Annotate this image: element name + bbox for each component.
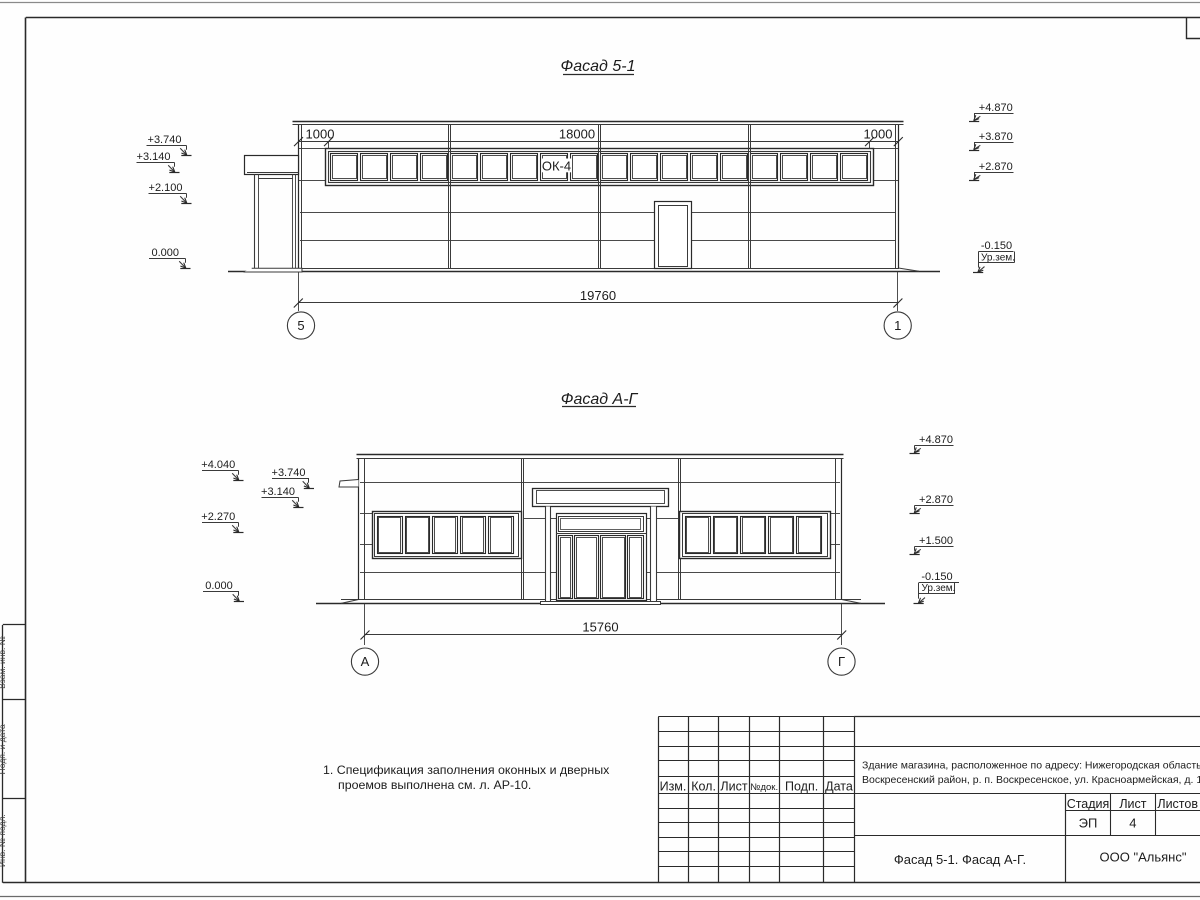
svg-text:Взам. инв. №: Взам. инв. № xyxy=(0,636,7,689)
svg-text:4: 4 xyxy=(1129,816,1136,831)
svg-text:Лист: Лист xyxy=(1119,797,1146,811)
svg-text:Листов: Листов xyxy=(1157,797,1198,811)
svg-text:Стадия: Стадия xyxy=(1067,797,1110,811)
svg-text:Воскресенский район, р. п. Вос: Воскресенский район, р. п. Воскресенское… xyxy=(862,774,1200,786)
svg-text:+3.740: +3.740 xyxy=(272,467,306,479)
svg-text:18000: 18000 xyxy=(559,127,595,142)
svg-text:ООО "Альянс": ООО "Альянс" xyxy=(1100,850,1187,865)
svg-text:+3.870: +3.870 xyxy=(979,131,1013,143)
svg-text:1000: 1000 xyxy=(864,127,893,142)
svg-text:+1.500: +1.500 xyxy=(919,535,953,547)
svg-text:1. Спецификация заполнения око: 1. Спецификация заполнения оконных и две… xyxy=(323,763,610,777)
svg-text:проемов выполнена см. л. АР-10: проемов выполнена см. л. АР-10. xyxy=(338,778,531,792)
svg-text:№док.: №док. xyxy=(750,782,778,793)
svg-text:Фасад А-Г: Фасад А-Г xyxy=(561,391,639,408)
svg-text:Г: Г xyxy=(838,654,845,669)
svg-text:+3.740: +3.740 xyxy=(148,134,182,146)
svg-text:+4.870: +4.870 xyxy=(919,434,953,446)
svg-text:+3.140: +3.140 xyxy=(261,486,295,498)
svg-text:Подп. и дата: Подп. и дата xyxy=(0,724,7,774)
svg-text:+2.870: +2.870 xyxy=(979,161,1013,173)
svg-text:+3.140: +3.140 xyxy=(137,151,171,163)
svg-text:А: А xyxy=(361,654,370,669)
svg-text:Здание магазина, расположенное: Здание магазина, расположенное по адресу… xyxy=(862,760,1200,772)
svg-text:+4.040: +4.040 xyxy=(201,459,235,471)
svg-text:+4.870: +4.870 xyxy=(979,102,1013,114)
svg-text:Дата: Дата xyxy=(825,779,853,793)
svg-text:-0.150: -0.150 xyxy=(981,240,1012,252)
svg-text:Изм.: Изм. xyxy=(660,779,687,793)
svg-text:+2.100: +2.100 xyxy=(149,182,183,194)
svg-text:5: 5 xyxy=(297,318,304,333)
svg-text:1000: 1000 xyxy=(306,127,335,142)
svg-text:19760: 19760 xyxy=(580,288,616,303)
svg-text:0.000: 0.000 xyxy=(151,247,179,259)
svg-text:Фасад 5-1. Фасад А-Г.: Фасад 5-1. Фасад А-Г. xyxy=(894,852,1026,867)
svg-text:+2.870: +2.870 xyxy=(919,494,953,506)
svg-text:ЭП: ЭП xyxy=(1079,816,1098,831)
svg-text:15760: 15760 xyxy=(582,620,618,635)
svg-text:Кол.: Кол. xyxy=(691,779,716,793)
svg-text:0.000: 0.000 xyxy=(205,580,233,592)
svg-text:1: 1 xyxy=(894,318,901,333)
svg-text:Лист: Лист xyxy=(720,779,747,793)
svg-text:Инв. № подл.: Инв. № подл. xyxy=(0,814,7,867)
svg-text:Ур.зем.: Ур.зем. xyxy=(922,583,956,594)
svg-text:Ур.зем.: Ур.зем. xyxy=(981,252,1015,263)
svg-text:Фасад 5-1: Фасад 5-1 xyxy=(561,58,636,75)
svg-text:-0.150: -0.150 xyxy=(921,571,952,583)
svg-text:+2.270: +2.270 xyxy=(201,511,235,523)
svg-text:ОК-4: ОК-4 xyxy=(542,159,571,174)
svg-text:Подп.: Подп. xyxy=(785,779,818,793)
